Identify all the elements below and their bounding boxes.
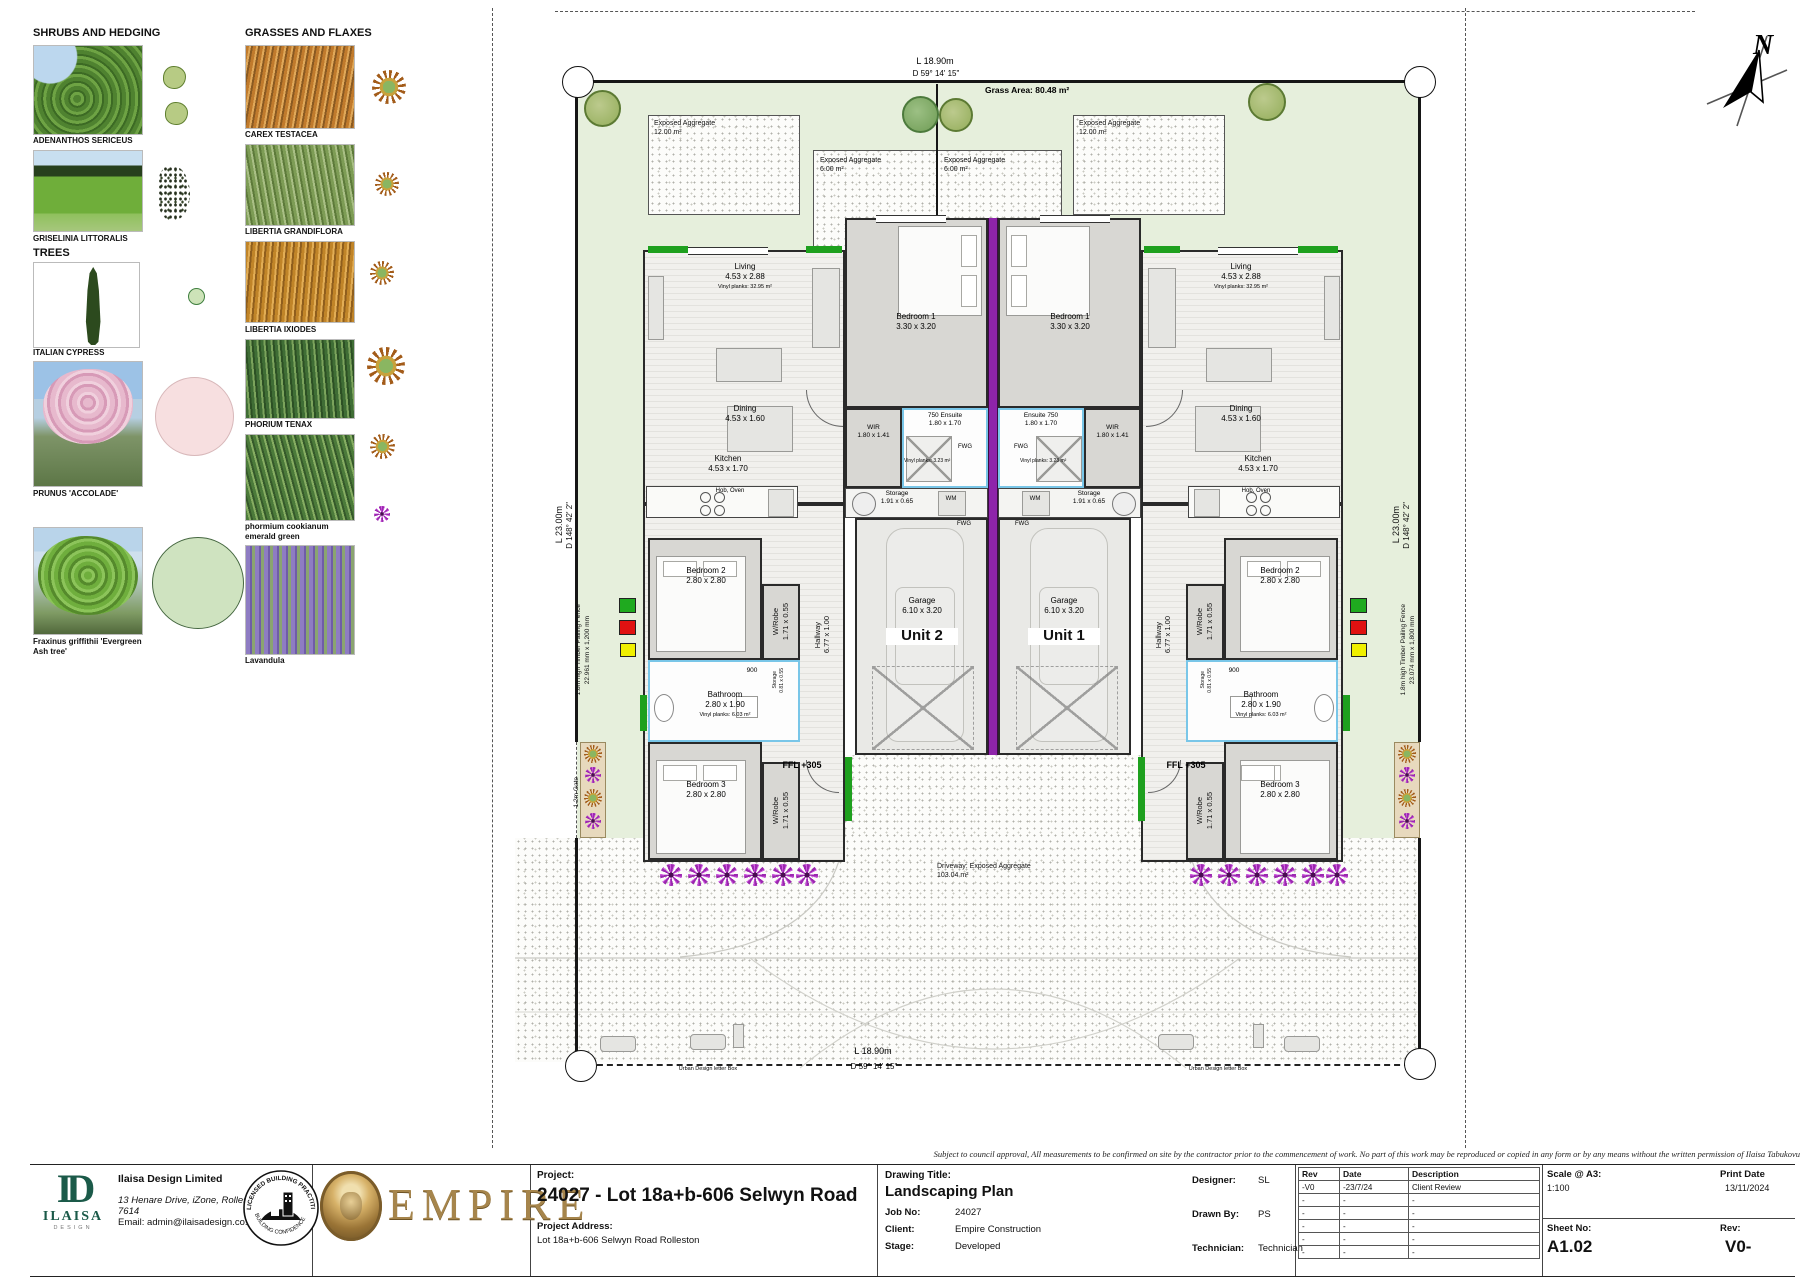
divider: [877, 1165, 878, 1276]
project-title: 24027 - Lot 18a+b-606 Selwyn Road: [537, 1185, 858, 1207]
dining-label-u2: Dining4.53 x 1.60: [660, 404, 830, 424]
storage-label-u2: Storage1.91 x 0.65: [858, 490, 936, 506]
aggregate-label: Exposed Aggregate6.00 m²: [944, 156, 1034, 174]
divider: [1295, 1165, 1296, 1276]
planting-accent: [640, 695, 647, 731]
ensuite-note-u1: Vinyl planks: 3.23 m²: [1020, 458, 1082, 464]
letterbox-label: Urban Design letter Box: [648, 1066, 768, 1073]
client: Empire Construction: [955, 1224, 1041, 1235]
dim-top-length: L 18.90m: [880, 56, 990, 67]
utility-marker-red: [1350, 620, 1367, 635]
designer-label: Designer:: [1192, 1175, 1236, 1186]
storage-small-label-u2: Storage0.81 x 0.55: [768, 656, 790, 704]
rev-label: Rev:: [1720, 1223, 1741, 1234]
garage-label-u1: Garage6.10 x 3.20: [1030, 596, 1098, 616]
parking-mark: [1016, 666, 1118, 750]
plant-photo-prunus: [33, 361, 143, 487]
parked-car: [1158, 1034, 1194, 1050]
wrobe2-label-u1: W/Robe1.71 x 0.55: [1186, 584, 1224, 660]
sheet-no-label: Sheet No:: [1547, 1223, 1591, 1234]
print-date-label: Print Date: [1720, 1169, 1765, 1180]
wm-label: WM: [938, 496, 964, 504]
lbp-badge-icon: LICENSED BUILDING PRACTITIONERS BUILDING…: [241, 1168, 321, 1248]
plant-caption: CAREX TESTACEA: [245, 130, 355, 140]
frame-dash-right: [1465, 8, 1466, 1148]
drawn-by: PS: [1258, 1209, 1271, 1220]
tree-symbol: [1248, 83, 1286, 121]
scale-value: 1:100: [1547, 1183, 1570, 1193]
planting-accent: [648, 246, 688, 253]
north-arrow-icon: N: [1695, 28, 1800, 133]
trees-heading: TREES: [33, 247, 70, 259]
ensuite-note-u2: Vinyl planks: 3.23 m²: [904, 458, 966, 464]
boundary-right-lower: [1418, 838, 1421, 1068]
bed: [898, 226, 982, 316]
grass-symbol-icon: [372, 70, 406, 104]
project-label: Project:: [537, 1170, 574, 1181]
parked-car: [600, 1036, 636, 1052]
unit1-label: Unit 1: [1028, 628, 1100, 645]
bedroom3-label-u1: Bedroom 32.80 x 2.80: [1226, 780, 1334, 800]
planting-accent: [1298, 246, 1338, 253]
wrobe2-label-u2: W/Robe1.71 x 0.55: [762, 584, 800, 660]
revision-table: RevDateDescription -V0-23/7/24Client Rev…: [1298, 1167, 1540, 1259]
dining-label-u1: Dining4.53 x 1.60: [1156, 404, 1326, 424]
plant-photo-fraxinus: [33, 527, 143, 635]
project-address: Lot 18a+b-606 Selwyn Road Rolleston: [537, 1235, 699, 1246]
aggregate-label: Exposed Aggregate12.00 m²: [654, 119, 744, 137]
frame-dash-top: [555, 11, 1695, 12]
plant-caption: LIBERTIA IXIODES: [245, 325, 355, 335]
garage-label-u2: Garage6.10 x 3.20: [888, 596, 956, 616]
ensuite-label-u2: 750 Ensuite1.80 x 1.70: [902, 412, 988, 428]
parked-car: [1284, 1036, 1320, 1052]
project-address-label: Project Address:: [537, 1221, 613, 1232]
rev-value: V0-: [1725, 1237, 1751, 1257]
living-label-u1: Living4.53 x 2.88Vinyl planks: 32.95 m²: [1156, 262, 1326, 291]
client-label: Client:: [885, 1224, 915, 1235]
grass-area-label: Grass Area: 80.48 m²: [985, 85, 1155, 96]
grass-symbol-icon: [367, 347, 405, 385]
wir-u1: [1084, 408, 1141, 488]
plant-photo-libertia-ixiodes: [245, 241, 355, 323]
aggregate-label: Exposed Aggregate12.00 m²: [1079, 119, 1169, 137]
hallway-label-u2: Hallway6.77 x 1.00: [800, 560, 845, 710]
plant-caption: Lavandula: [245, 656, 345, 666]
plant-photo-libertia-grandiflora: [245, 144, 355, 226]
bed: [656, 760, 746, 854]
svg-text:N: N: [1752, 30, 1775, 61]
stage-label: Stage:: [885, 1241, 914, 1252]
letterbox-symbol: [1253, 1024, 1264, 1048]
aggregate-label: Exposed Aggregate6.00 m²: [820, 156, 910, 174]
utility-marker-green: [619, 598, 636, 613]
prunus-symbol-icon: [155, 377, 234, 456]
grass-symbol-icon: [375, 172, 399, 196]
fwg-label: FWG: [946, 521, 982, 529]
plant-caption: PHORIUM TENAX: [245, 420, 355, 430]
hedge-symbol-icon: [158, 166, 190, 220]
fwg-label: FWG: [1004, 444, 1038, 452]
drawing-title-label: Drawing Title:: [885, 1170, 951, 1181]
stage: Developed: [955, 1241, 1000, 1252]
window: [1040, 215, 1110, 223]
lavandula-symbol-icon: [374, 506, 390, 522]
fence-label-right: 1.8m high Timber Pailing Fence 23.074 mm…: [1396, 560, 1420, 740]
shrub-symbol-icon: [163, 66, 186, 89]
plant-caption: ITALIAN CYPRESS: [33, 348, 143, 358]
washing-machine: [1022, 491, 1050, 516]
drawing-title: Landscaping Plan: [885, 1183, 1013, 1200]
plant-caption: PRUNUS 'ACCOLADE': [33, 489, 143, 499]
divider-horizontal: [1542, 1218, 1795, 1219]
plant-photo-phormium-cookianum: [245, 434, 355, 521]
coffee-table: [1206, 348, 1272, 382]
party-wall: [988, 218, 998, 755]
letterbox-symbol: [733, 1024, 744, 1048]
plant-photo-carex: [245, 45, 355, 129]
blossom-shape: [43, 369, 134, 443]
hallway-label-u1: Hallway6.77 x 1.00: [1141, 560, 1186, 710]
grass-symbol-icon: [370, 434, 395, 459]
job-label: Job No:: [885, 1207, 920, 1218]
fwg-label: FWG: [1004, 521, 1040, 529]
window: [876, 215, 946, 223]
window: [688, 247, 768, 255]
plant-photo-italian-cypress: [33, 262, 140, 348]
plant-caption: Fraxinus griffithii 'Evergreen Ash tree': [33, 637, 145, 656]
wrobe3-label-u2: W/Robe1.71 x 0.55: [762, 766, 800, 856]
storage-small-label-u1: Storage0.81 x 0.55: [1196, 656, 1218, 704]
planting-accent: [806, 246, 842, 253]
utility-marker-yellow: [620, 643, 636, 657]
survey-peg: [1404, 1048, 1436, 1080]
title-block: ID ILAISA DESIGN Ilaisa Design Limited 1…: [30, 1164, 1795, 1277]
tree-symbol: [939, 98, 973, 132]
plant-caption: GRISELINIA LITTORALIS: [33, 234, 143, 244]
unit2-label: Unit 2: [886, 628, 958, 645]
utility-marker-red: [619, 620, 636, 635]
bedroom3-label-u2: Bedroom 32.80 x 2.80: [652, 780, 760, 800]
job-no: 24027: [955, 1207, 981, 1218]
hob-label-u2: Hob, Oven: [700, 488, 760, 496]
scale-label: Scale @ A3:: [1547, 1169, 1601, 1180]
ffl-label-u2: FFL +305: [772, 760, 832, 771]
dim-900-u1: 900: [1222, 667, 1246, 675]
driveway-label: Driveway: Exposed Aggregate103.04 m²: [937, 862, 1077, 880]
wm-label: WM: [1022, 496, 1048, 504]
shrubs-heading: SHRUBS AND HEDGING: [33, 27, 160, 39]
entry-screen: [1138, 757, 1145, 821]
print-date: 13/11/2024: [1725, 1183, 1769, 1193]
ffl-label-u1: FFL +305: [1156, 760, 1216, 771]
ensuite-label-u1: Ensuite 7501.80 x 1.70: [998, 412, 1084, 428]
utility-marker-green: [1350, 598, 1367, 613]
fridge: [1194, 489, 1220, 517]
planting-accent: [1343, 695, 1350, 731]
boundary-left-lower: [575, 838, 578, 1068]
planting-strip-right: [1394, 742, 1420, 838]
frame-dash-left: [492, 8, 493, 1148]
grasses-heading: GRASSES AND FLAXES: [245, 27, 372, 39]
technician: Technician: [1258, 1243, 1303, 1254]
bedroom2-label-u1: Bedroom 22.80 x 2.80: [1226, 566, 1334, 586]
coffee-table: [716, 348, 782, 382]
plant-photo-adenanthos: [33, 45, 143, 135]
plant-photo-lavandula: [245, 545, 355, 655]
survey-peg: [562, 66, 594, 98]
grass-symbol-icon: [370, 261, 394, 285]
planting-strip-left: [580, 742, 606, 838]
storage-label-u1: Storage1.91 x 0.65: [1050, 490, 1128, 506]
parking-mark: [872, 666, 974, 750]
boundary-top: [577, 80, 1420, 83]
kitchen-label-u1: Kitchen4.53 x 1.70: [1178, 454, 1338, 474]
window: [1218, 247, 1298, 255]
hob-label-u1: Hob, Oven: [1226, 488, 1286, 496]
empire-lion-icon: [320, 1171, 382, 1241]
dim-bottom-bearing: D 59° 14' 15": [814, 1062, 934, 1072]
dim-bottom-length: L 18.90m: [818, 1046, 928, 1057]
fwg-label: FWG: [948, 444, 982, 452]
designer: SL: [1258, 1175, 1270, 1186]
living-label-u2: Living4.53 x 2.88Vinyl planks: 32.95 m²: [660, 262, 830, 291]
sheet-no: A1.02: [1547, 1237, 1592, 1257]
bedroom2-label-u2: Bedroom 22.80 x 2.80: [652, 566, 760, 586]
parked-car: [690, 1034, 726, 1050]
landscaping-plan-sheet: SHRUBS AND HEDGING ADENANTHOS SERICEUS G…: [0, 0, 1810, 1280]
canopy-shape: [38, 536, 137, 614]
bed: [1006, 226, 1090, 316]
letterbox-label: Urban Design letter Box: [1158, 1066, 1278, 1073]
fraxinus-symbol-icon: [152, 537, 244, 629]
cypress-symbol-icon: [188, 288, 205, 305]
survey-peg: [1404, 66, 1436, 98]
plant-photo-phormium-tenax: [245, 339, 355, 419]
washing-machine: [938, 491, 966, 516]
utility-marker-yellow: [1351, 643, 1367, 657]
ilaisa-logo: ID ILAISA DESIGN: [40, 1169, 106, 1231]
cypress-shape: [80, 267, 106, 345]
wrobe3-label-u1: W/Robe1.71 x 0.55: [1186, 766, 1224, 856]
tree-symbol: [584, 90, 621, 127]
bedroom1-label-u2: Bedroom 13.30 x 3.20: [848, 312, 984, 332]
fridge: [768, 489, 794, 517]
drawn-by-label: Drawn By:: [1192, 1209, 1239, 1220]
wir-label-u2: WIR1.80 x 1.41: [845, 424, 902, 440]
dim-top-bearing: D 59° 14' 15": [876, 69, 996, 79]
tree-symbol: [902, 96, 939, 133]
divider: [1542, 1165, 1543, 1276]
driveway-throat: [800, 755, 1186, 840]
shrub-symbol-icon: [165, 102, 188, 125]
bedroom1-label-u1: Bedroom 13.30 x 3.20: [1002, 312, 1138, 332]
survey-peg: [565, 1050, 597, 1082]
entry-screen: [845, 757, 852, 821]
kitchen-label-u2: Kitchen4.53 x 1.70: [648, 454, 808, 474]
wir-u2: [845, 408, 902, 488]
planting-accent: [1144, 246, 1180, 253]
plant-caption: phormium cookianum emerald green: [245, 522, 345, 541]
plant-photo-griselinia: [33, 150, 143, 232]
technician-label: Technician:: [1192, 1243, 1244, 1254]
plant-caption: LIBERTIA GRANDIFLORA: [245, 227, 355, 237]
dim-900-u2: 900: [740, 667, 764, 675]
bed: [1240, 760, 1330, 854]
wir-label-u1: WIR1.80 x 1.41: [1084, 424, 1141, 440]
disclaimer: Subject to council approval, All measure…: [700, 1149, 1800, 1159]
tv-unit: [1324, 276, 1340, 340]
fence-label-left: 1.8m high Timber Pailing Fence 22.961 mm…: [571, 560, 595, 740]
plant-caption: ADENANTHOS SERICEUS: [33, 136, 143, 146]
